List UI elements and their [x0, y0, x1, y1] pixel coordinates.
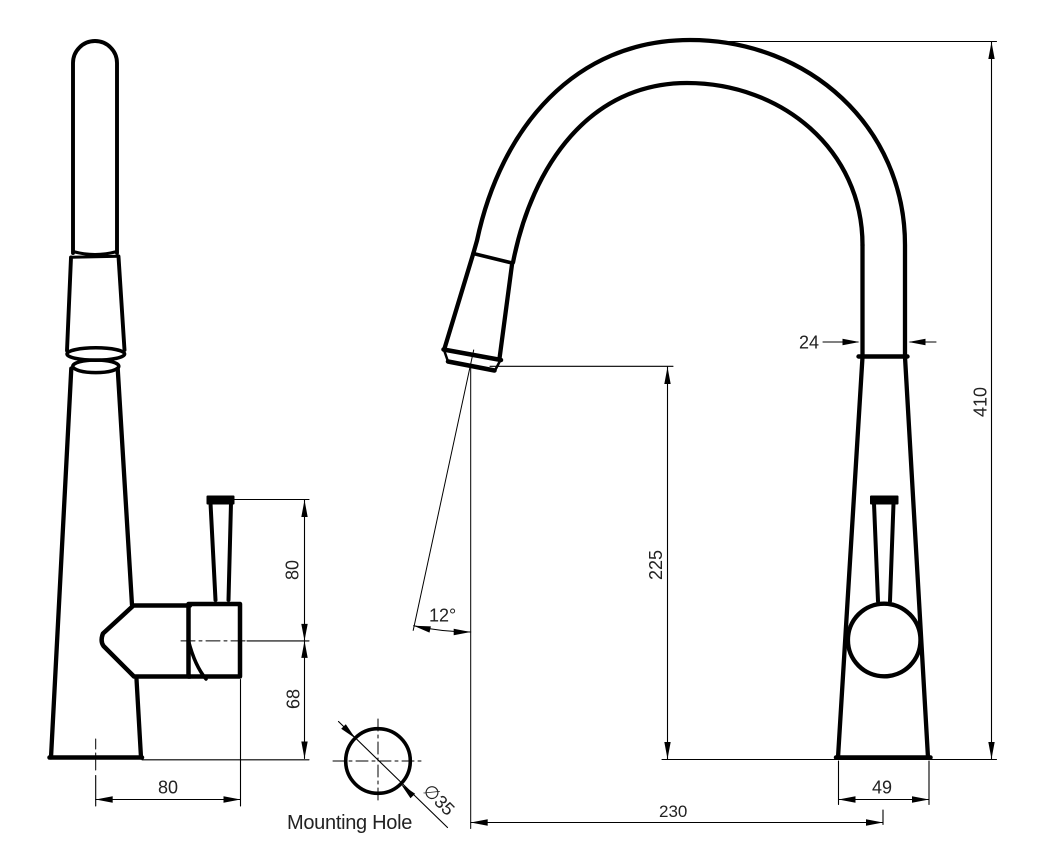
svg-text:12°: 12° — [429, 606, 456, 626]
svg-text:230: 230 — [659, 802, 687, 821]
svg-text:68: 68 — [284, 689, 304, 709]
svg-text:410: 410 — [971, 387, 991, 417]
svg-text:24: 24 — [799, 333, 819, 353]
svg-text:80: 80 — [158, 778, 178, 798]
svg-text:80: 80 — [283, 560, 303, 580]
svg-text:49: 49 — [872, 778, 892, 798]
svg-text:225: 225 — [646, 550, 666, 580]
svg-text:Mounting Hole: Mounting Hole — [287, 812, 412, 834]
svg-text:∅35: ∅35 — [419, 780, 458, 819]
